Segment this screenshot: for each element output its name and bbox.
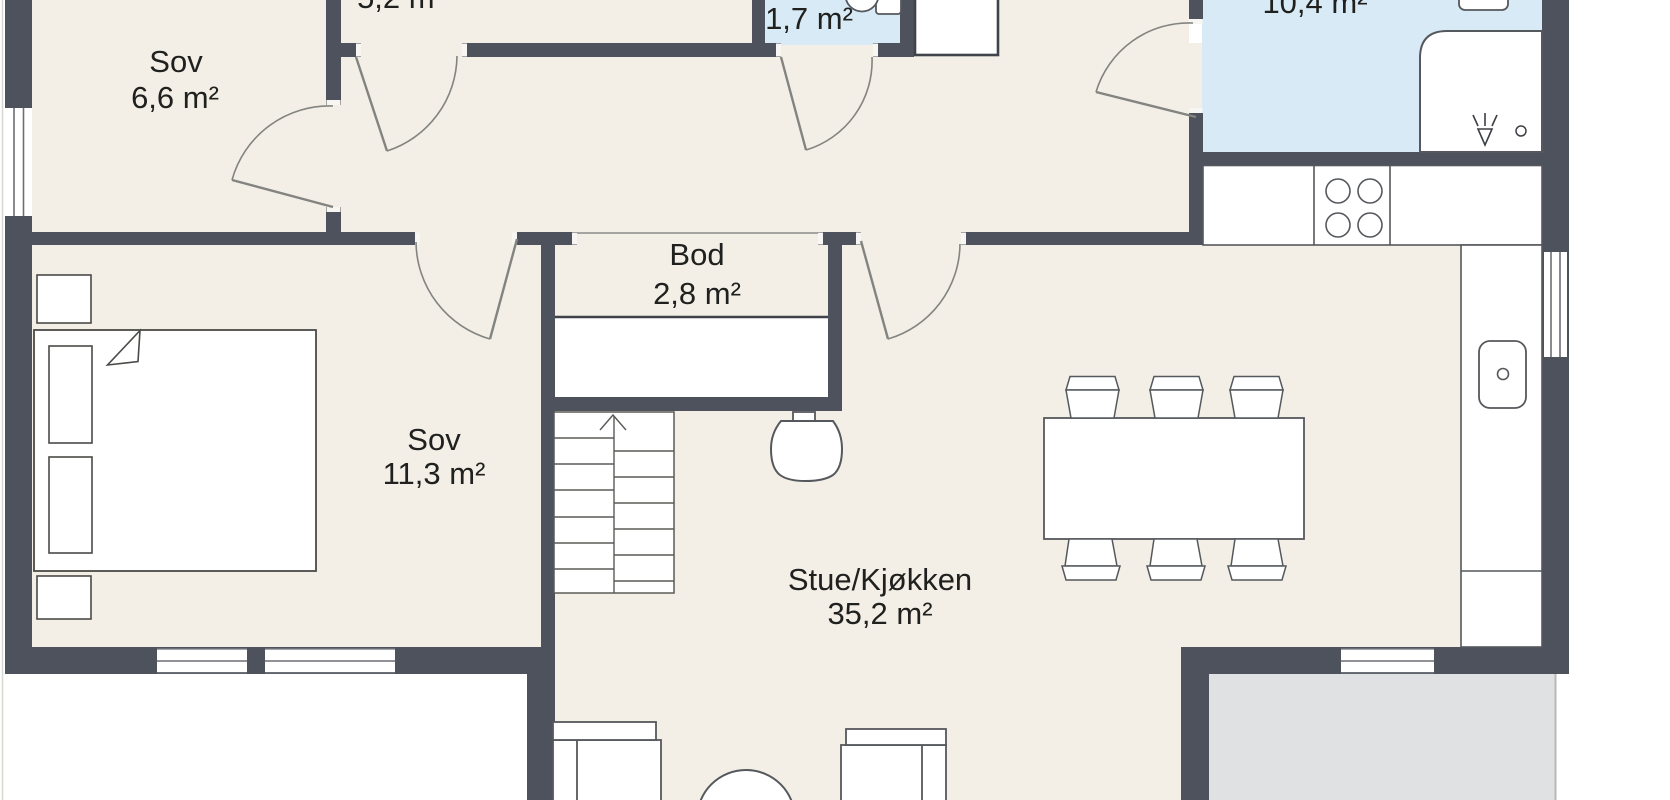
svg-text:5,2 m²: 5,2 m² bbox=[357, 0, 445, 15]
svg-text:6,6 m²: 6,6 m² bbox=[131, 80, 219, 115]
svg-text:1,7 m²: 1,7 m² bbox=[765, 1, 853, 36]
svg-text:Sov: Sov bbox=[407, 422, 461, 457]
svg-text:35,2 m²: 35,2 m² bbox=[827, 596, 932, 631]
svg-text:Bod: Bod bbox=[669, 237, 724, 272]
svg-text:Sov: Sov bbox=[149, 44, 203, 79]
svg-text:11,3 m²: 11,3 m² bbox=[383, 456, 486, 491]
svg-text:Stue/Kjøkken: Stue/Kjøkken bbox=[788, 562, 972, 597]
svg-text:10,4 m²: 10,4 m² bbox=[1262, 0, 1367, 20]
svg-text:2,8 m²: 2,8 m² bbox=[653, 276, 741, 311]
